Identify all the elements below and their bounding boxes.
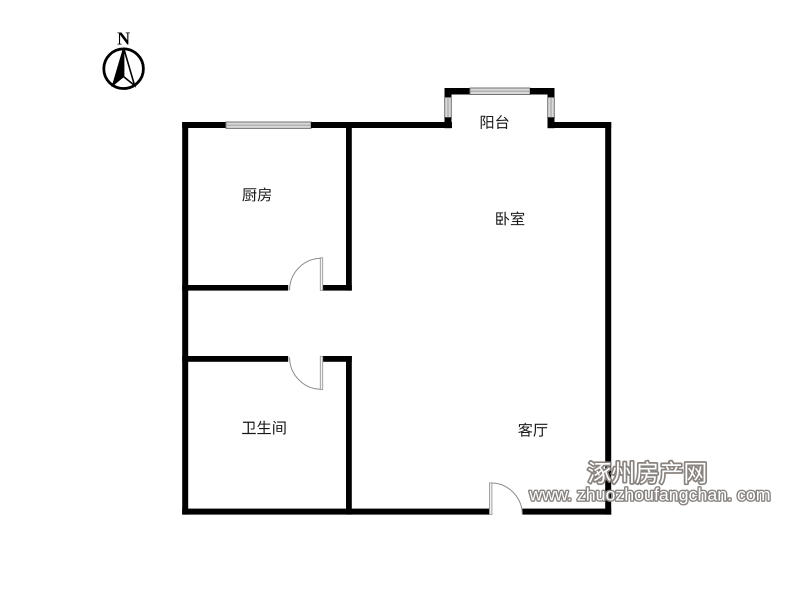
svg-text:N: N <box>117 28 130 48</box>
svg-text:www. zhuozhoufangchan. com: www. zhuozhoufangchan. com <box>528 484 770 504</box>
